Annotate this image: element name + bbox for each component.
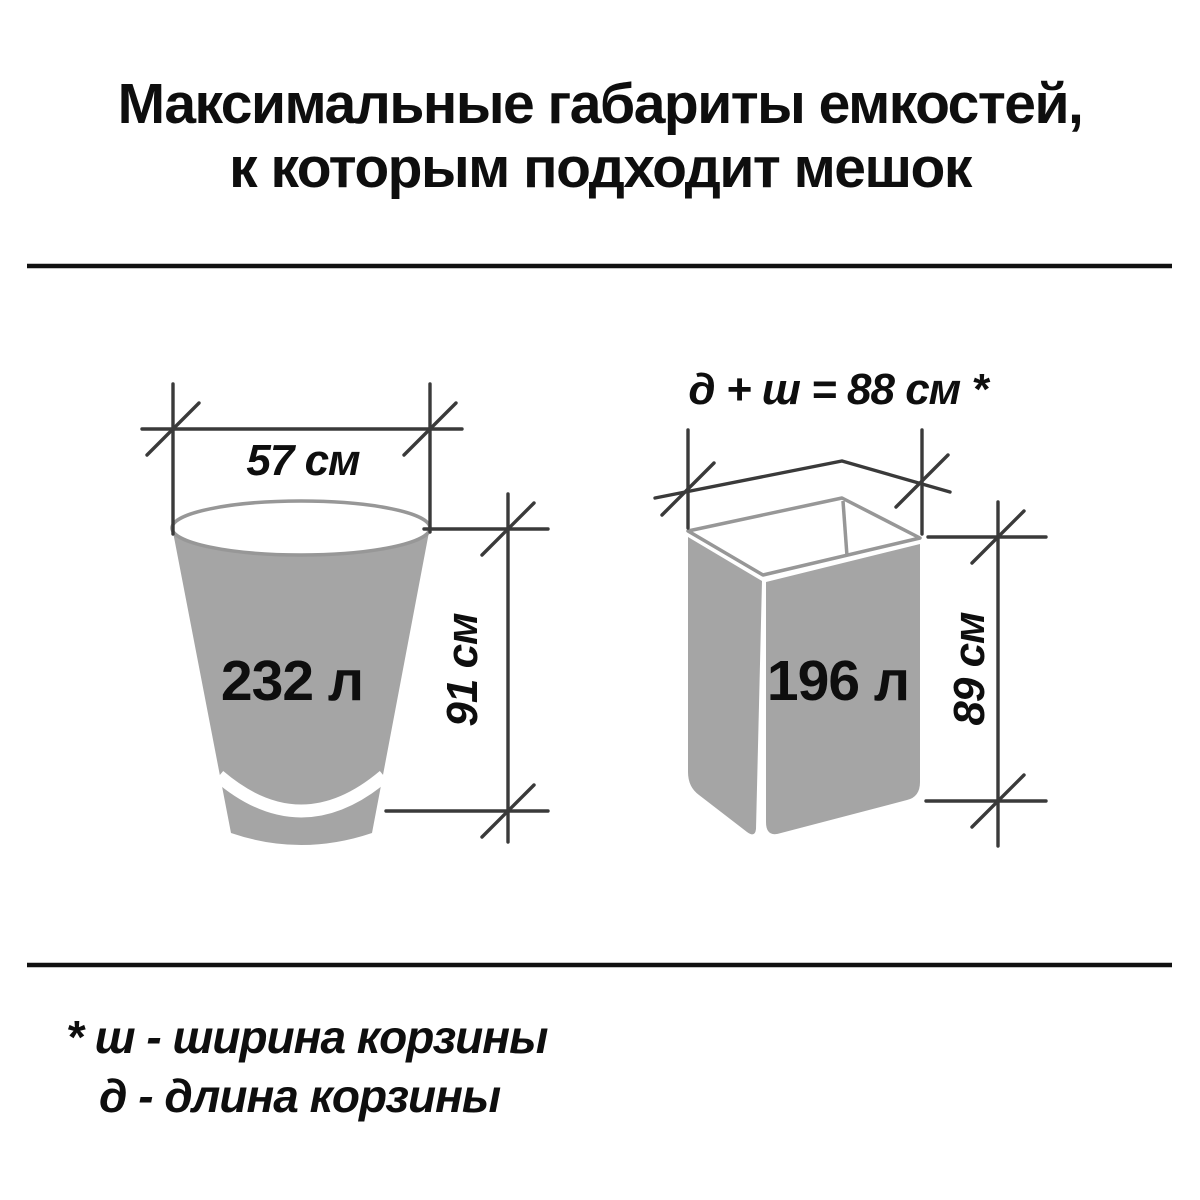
bucket-volume-label: 232 л <box>221 649 363 713</box>
basket-volume-label: 196 л <box>767 649 909 713</box>
basket-height-label: 89 см <box>945 612 994 726</box>
bucket-figure: 232 л <box>172 501 430 845</box>
basket-left-face <box>688 537 762 834</box>
basket-figure: 196 л <box>688 498 920 834</box>
bucket-width-label: 57 см <box>246 436 360 485</box>
footnote-line-1: * ш - ширина корзины <box>66 1008 547 1067</box>
basket-top-label: д + ш = 88 см * <box>688 365 990 414</box>
basket-height-dimension: 89 см <box>926 502 1046 846</box>
infographic-page: Максимальные габариты емкостей, к которы… <box>0 0 1200 1200</box>
bucket-height-label: 91 см <box>438 613 487 727</box>
footnote-line-2: д - длина корзины <box>66 1067 547 1126</box>
bucket-rim <box>172 501 430 555</box>
footnote: * ш - ширина корзины д - длина корзины <box>66 1008 547 1126</box>
